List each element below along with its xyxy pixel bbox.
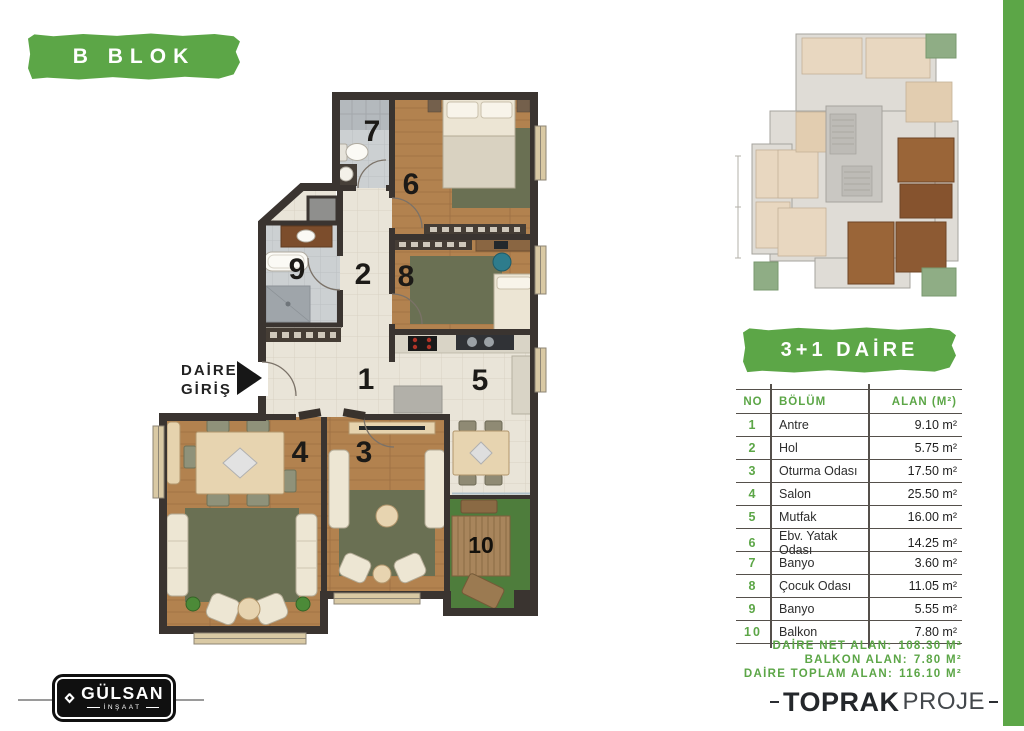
room-number-7: 7 [364,115,381,148]
entry-label: DAİRE GİRİŞ [181,361,262,398]
shaft [308,197,337,224]
unit-type-label: 3+1 DAİRE [743,327,956,373]
dash-icon [989,701,998,704]
room-no: 8 [736,579,770,593]
room-name: Oturma Odası [770,464,868,478]
room-name: Hol [770,441,868,455]
room-area: 11.05 m² [868,579,962,593]
green-accent-bar [1003,0,1024,726]
header-no: NO [736,396,770,408]
sofa [329,450,349,528]
room-area: 17.50 m² [868,464,962,478]
header-area: ALAN (M²) [868,396,962,408]
room-area: 9.10 m² [868,418,962,432]
room-area: 3.60 m² [868,556,962,570]
room-number-9: 9 [289,253,306,286]
room-area: 14.25 m² [868,536,962,550]
dresser [424,224,526,235]
sofa [425,450,445,528]
entry-label-line2: GİRİŞ [181,381,232,398]
room-no: 1 [736,418,770,432]
stove [408,336,437,351]
summary-total-area: DAİRE TOPLAM ALAN:116.10 M² [640,667,962,681]
toprak-subtitle: PROJE [903,688,986,716]
summary-balcony-area: BALKON ALAN:7.80 M² [640,653,962,667]
entry-label-line1: DAİRE [181,362,238,379]
room-number-6: 6 [403,168,420,201]
antre-cabinet [265,328,341,342]
room-name: Balkon [770,625,868,639]
room-no: 9 [736,602,770,616]
building-core [826,106,882,202]
room-no: 6 [736,536,770,550]
sofa [167,514,188,596]
unit-type-label-text: 3+1 DAİRE [781,339,919,362]
gulsan-subtitle: İNŞAAT [87,705,159,712]
room-no: 7 [736,556,770,570]
area-summary: DAİRE NET ALAN:108.30 M² BALKON ALAN:7.8… [640,639,962,681]
room-number-4: 4 [292,436,309,469]
plant [296,597,310,611]
dimension-line [735,156,741,258]
room-area: 25.50 m² [868,487,962,501]
header-section: BÖLÜM [770,396,868,408]
room-no: 10 [736,625,770,639]
room-name: Salon [770,487,868,501]
summary-net-area: DAİRE NET ALAN:108.30 M² [640,639,962,653]
room-number-1: 1 [358,363,375,396]
building-overview-plan [730,26,980,314]
room-name: Banyo [770,602,868,616]
room-area: 5.55 m² [868,602,962,616]
rug [185,508,299,602]
plant [186,597,200,611]
room-name: Antre [770,418,868,432]
table-rule [770,384,772,648]
room-number-2: 2 [355,258,372,291]
balcony-rail [449,494,532,498]
room-number-3: 3 [356,436,373,469]
room-no: 4 [736,487,770,501]
desk-chair [493,253,511,271]
block-label-text: B BLOK [73,45,196,69]
room-number-10: 10 [468,532,494,558]
room-no: 3 [736,464,770,478]
dash-icon [770,701,779,704]
room-no: 2 [736,441,770,455]
toprak-logo: TOPRAK PROJE [770,687,1010,717]
room-number-8: 8 [398,260,415,293]
rug [410,256,502,324]
gulsan-diamond-icon [64,685,75,711]
table-rule [868,384,870,648]
floor-plan: 1 2 3 4 5 6 7 8 9 10 DAİRE GİRİŞ [150,88,560,658]
room-area: 16.00 m² [868,510,962,524]
room-area: 7.80 m² [868,625,962,639]
room-name: Çocuk Odası [770,579,868,593]
gulsan-logo: GÜLSAN İNŞAAT [55,677,173,719]
brochure-page: { "colors":{"accent_green":"#5ca647","wa… [0,0,1024,731]
area-table: NO BÖLÜM ALAN (M²) 1 Antre 9.10 m² 2 Hol… [736,389,962,644]
room-no: 5 [736,510,770,524]
room-area: 5.75 m² [868,441,962,455]
room-number-5: 5 [472,364,489,397]
gulsan-name: GÜLSAN [81,685,164,703]
room-name: Mutfak [770,510,868,524]
sofa [296,514,317,596]
room-name: Ebv. Yatak Odası [770,529,868,557]
room-name: Banyo [770,556,868,570]
block-label: B BLOK [28,33,240,80]
toprak-name: TOPRAK [783,687,900,718]
